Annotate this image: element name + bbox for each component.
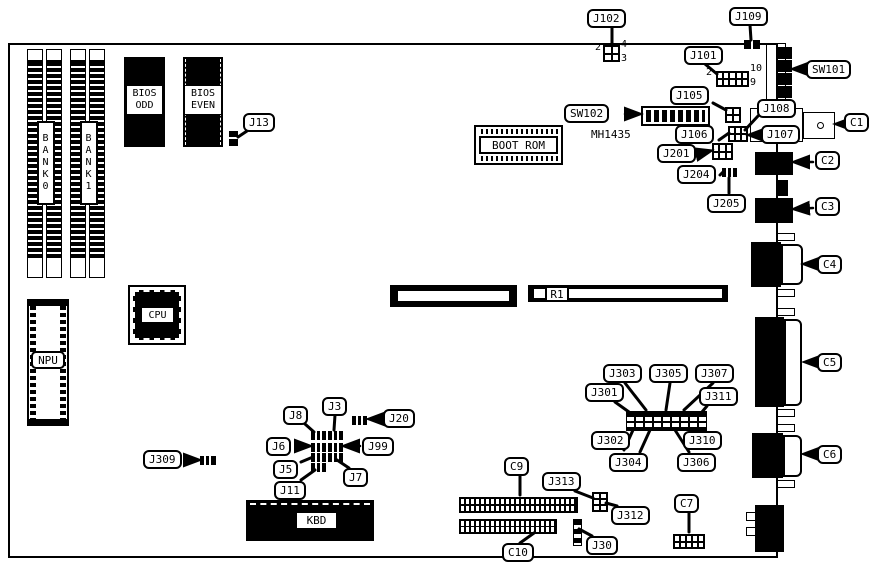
simm-socket-bottom [89,257,105,278]
pin [594,500,599,504]
callout-c4: C4 [817,255,842,274]
sw102-part-number: MH1435 [591,130,631,140]
pin [681,536,685,541]
connector-c5-shell [784,319,802,406]
kbd-dash-line [250,503,370,505]
pin [720,145,724,151]
bank1-label: BANK1 [80,121,98,205]
connector-c6-shell [783,435,802,477]
c6-mount-tab [777,424,795,432]
jumper-j303 [644,411,653,431]
callout-j312: J312 [611,506,650,525]
pin [613,47,619,53]
connector-c1 [803,112,835,139]
pin [742,135,746,140]
pin [687,536,691,541]
c1-pin-hole [817,122,824,129]
callout-c6: C6 [817,445,842,464]
jumper-j301 [626,411,635,431]
callout-j305: J305 [649,364,688,383]
simm-socket-bottom [70,257,86,278]
connector-c4-body [751,242,781,287]
pin [601,500,606,504]
sw102-segments [646,110,705,122]
callout-j106: J106 [675,125,714,144]
bank0-text: BANK0 [39,133,53,193]
jumper-j8 [311,431,326,440]
jumper-j3 [328,431,343,440]
simm-socket-top [70,49,86,61]
pin [687,543,691,548]
pin [693,536,697,541]
callout-j101: J101 [684,46,723,65]
callout-j313: J313 [542,472,581,491]
c10-pins-row1 [461,521,555,526]
jumper-j99 [328,443,343,452]
simm-socket-top [89,49,105,61]
pin [720,153,724,159]
pin [693,543,697,548]
callout-j108: J108 [757,99,796,118]
c4-mount-tab [777,289,795,297]
switch-sw101-seg [778,60,792,72]
pin [613,55,619,61]
j102-pin2-label: 2 [595,43,601,53]
motherboard-layout-diagram: BANK0 BANK1 BIOS ODD BIOS EVEN BOOT ROM … [0,0,881,574]
callout-c9: C9 [504,457,529,476]
jumper-j6 [311,443,326,452]
c9-pins-row1 [461,499,576,504]
connector-c2 [755,152,793,175]
bios-even-label: BIOS EVEN [184,85,222,115]
pin [727,116,732,121]
jumper-j102 [603,45,620,62]
j102-pin4-label: 4 [621,40,627,50]
callout-c5: C5 [817,353,842,372]
r1-label: R1 [545,286,569,302]
j102-pin3-label: 3 [621,54,627,64]
pin [714,153,718,159]
jumper-j302 [635,411,644,431]
boot-rom-label: BOOT ROM [479,136,558,154]
bottom-right-plug [746,527,756,536]
pin [737,80,741,85]
pin [681,543,685,548]
connector-c6-body [752,433,783,478]
boot-rom-pins-bottom [478,156,559,161]
simm-socket-top [27,49,43,61]
callout-j205: J205 [707,194,746,213]
callout-j307: J307 [695,364,734,383]
j101-pin2-label: 2 [706,68,712,78]
jumper-j109 [744,40,760,49]
jumper-j7 [328,453,343,462]
callout-j11: J11 [274,481,306,500]
callout-j107: J107 [761,125,800,144]
c10-pins-row2 [461,527,555,532]
pin [742,128,746,133]
pin [699,543,703,548]
pin [675,536,679,541]
connector-bottom-right [755,505,784,552]
jumper-j309 [200,456,216,465]
callout-j304: J304 [609,453,648,472]
pin [730,128,734,133]
callout-j204: J204 [677,165,716,184]
c5-mount-tab [777,409,795,417]
jumper-j11 [311,463,326,472]
header-j101 [716,71,749,87]
bank0-label: BANK0 [37,121,55,205]
jumper-j201 [712,143,733,160]
pin [730,73,734,78]
pin [727,153,731,159]
simm-socket-top [46,49,62,61]
jumper-j106 [728,126,748,142]
pin [594,494,599,498]
npu-label: NPU [31,351,65,369]
callout-c7: C7 [674,494,699,513]
callout-j8: J8 [283,406,308,425]
pin [734,109,739,114]
bottom-right-plug [746,512,756,521]
boot-rom-text: BOOT ROM [481,139,556,152]
cpu-text: CPU [142,309,173,322]
connector-c3 [755,198,793,223]
callout-c10: C10 [502,543,534,562]
pin [736,135,740,140]
simm-socket-bottom [27,257,43,278]
kbd-label: KBD [296,512,337,529]
pin [675,543,679,548]
boot-rom-pins-top [478,129,559,134]
jumper-j304 [653,411,662,431]
jumper-j13 [229,131,238,146]
bios-even-line2: EVEN [185,100,221,112]
jumper-j307 [680,411,689,431]
jumper-j311 [698,411,707,431]
callout-j7: J7 [343,468,368,487]
callout-j309: J309 [143,450,182,469]
jumper-j30 [573,519,582,546]
pin [743,80,747,85]
callout-j303: J303 [603,364,642,383]
pin [737,73,741,78]
cpu-label: CPU [141,307,174,323]
switch-sw101-seg [778,86,792,98]
bios-odd-line2: ODD [127,100,162,112]
pin [730,135,734,140]
connector-c4-shell [781,244,803,285]
connector-c5-body [755,317,784,407]
pin [727,145,731,151]
r1-text: R1 [547,288,567,301]
pin [601,494,606,498]
jumper-j306 [671,411,680,431]
pin [601,506,606,510]
callout-j105: J105 [670,86,709,105]
simm-socket-bottom [46,257,62,278]
callout-j301: J301 [585,383,624,402]
callout-j99: J99 [362,437,394,456]
c5-mount-tab [777,308,795,316]
callout-sw102: SW102 [564,104,609,123]
edge-block [777,180,788,196]
pin [727,109,732,114]
jumper-j5 [311,453,326,462]
callout-j5: J5 [273,460,298,479]
bank1-text: BANK1 [82,133,96,193]
callout-c2: C2 [815,151,840,170]
c4-mount-tab [777,233,795,241]
bios-odd-line1: BIOS [127,88,162,100]
pin [736,128,740,133]
j101-pin10-label: 10 [750,64,762,74]
switch-sw101-seg [778,47,792,59]
pin [605,47,611,53]
callout-j302: J302 [591,431,630,450]
jumper-j313 [592,492,608,512]
callout-j20: J20 [383,409,415,428]
callout-j102: J102 [587,9,626,28]
jumper-j305 [662,411,671,431]
pin [718,73,722,78]
callout-c3: C3 [815,197,840,216]
callout-j13: J13 [243,113,275,132]
c9-pins-row2 [461,506,576,511]
pin [605,55,611,61]
npu-bottom-bar [29,419,67,424]
switch-sw102 [641,106,710,126]
callout-j311: J311 [699,387,738,406]
callout-j310: J310 [683,431,722,450]
jumper-j310 [689,411,698,431]
callout-j6: J6 [266,437,291,456]
pin [699,536,703,541]
callout-j109: J109 [729,7,768,26]
jumper-j105 [725,107,741,123]
pin [714,145,718,151]
callout-j201: J201 [657,144,696,163]
switch-sw101-seg [778,73,792,85]
pin [724,73,728,78]
npu-text: NPU [33,354,63,367]
callout-j306: J306 [677,453,716,472]
pin [724,80,728,85]
callout-j3: J3 [322,397,347,416]
pin [734,116,739,121]
pin [718,80,722,85]
pin [743,73,747,78]
jumper-j204 [722,168,737,177]
bios-even-line1: BIOS [185,88,221,100]
j101-pin9-label: 9 [750,78,756,88]
callout-c1: C1 [844,113,869,132]
c6-mount-tab [777,480,795,488]
callout-sw101: SW101 [806,60,851,79]
kbd-text: KBD [297,514,336,527]
jumper-j20 [352,416,367,425]
resistor-bar-left-slot [398,291,509,301]
header-c7 [673,534,705,549]
callout-j30: J30 [586,536,618,555]
bios-odd-label: BIOS ODD [126,85,163,115]
pin [730,80,734,85]
pin [594,506,599,510]
